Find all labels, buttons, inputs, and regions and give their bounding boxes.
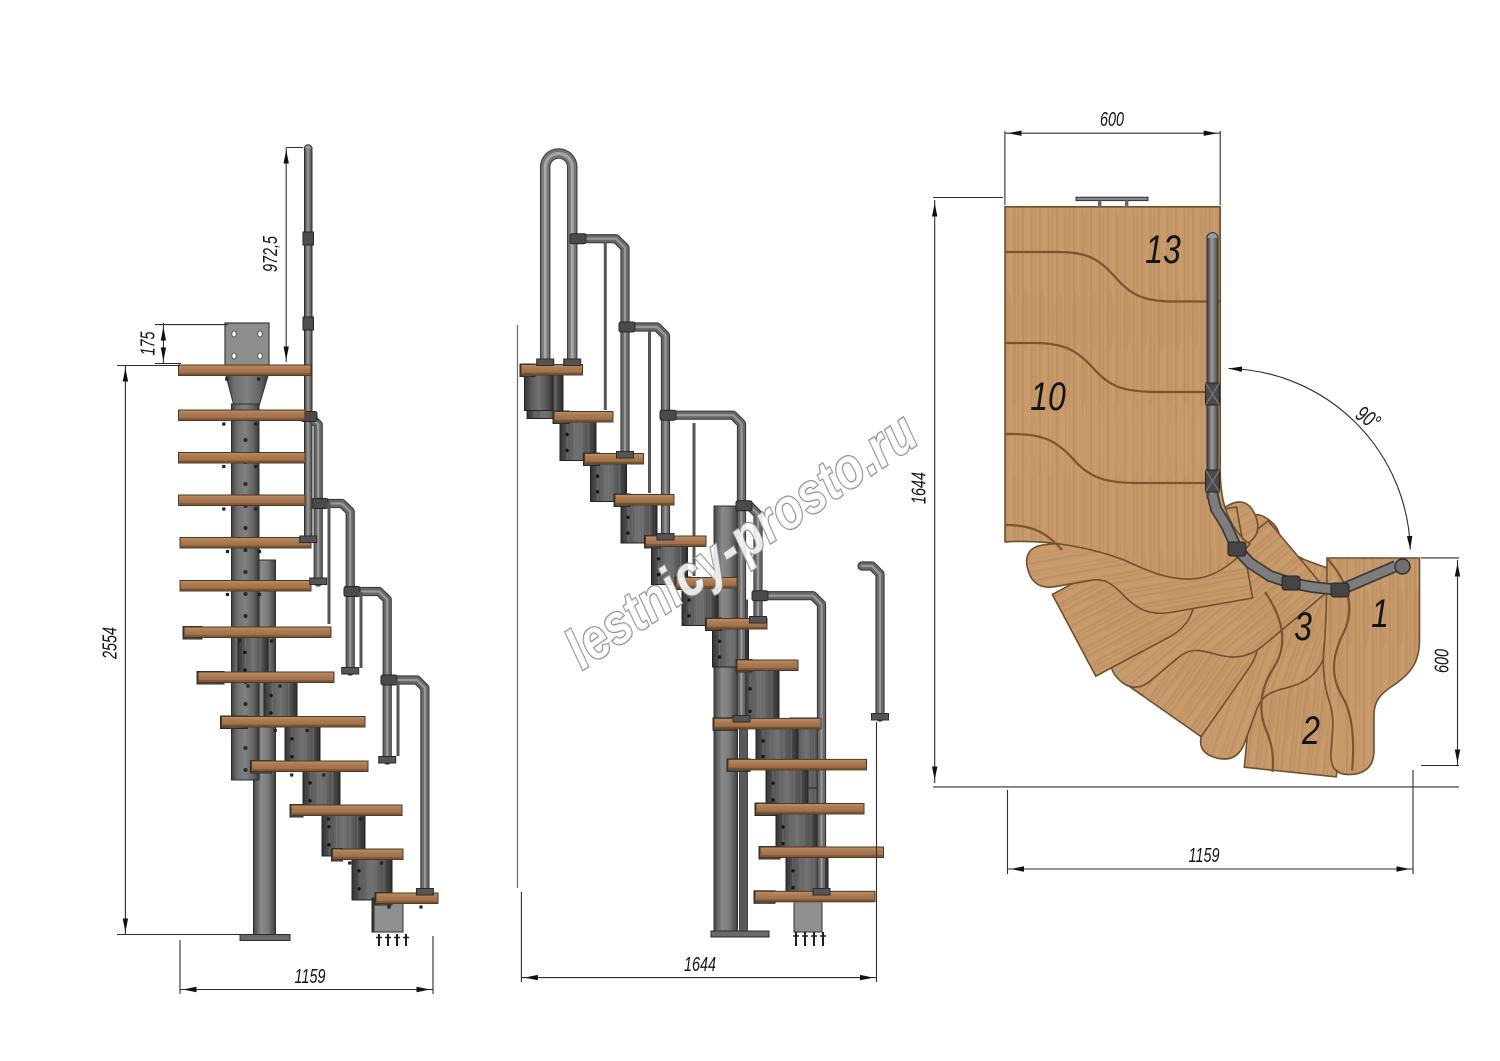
svg-text:972,5: 972,5 <box>259 236 282 272</box>
svg-text:1644: 1644 <box>907 472 930 504</box>
svg-text:10: 10 <box>1030 374 1066 419</box>
svg-text:3: 3 <box>1294 604 1312 649</box>
svg-text:1159: 1159 <box>295 965 326 988</box>
svg-text:600: 600 <box>1430 649 1453 673</box>
svg-text:1159: 1159 <box>1189 844 1220 867</box>
svg-text:175: 175 <box>136 331 159 355</box>
svg-text:2554: 2554 <box>98 627 121 660</box>
svg-text:1644: 1644 <box>684 953 716 976</box>
svg-text:2: 2 <box>1301 708 1320 753</box>
svg-text:13: 13 <box>1145 227 1181 272</box>
svg-text:1: 1 <box>1371 591 1389 636</box>
svg-text:600: 600 <box>1100 108 1124 131</box>
